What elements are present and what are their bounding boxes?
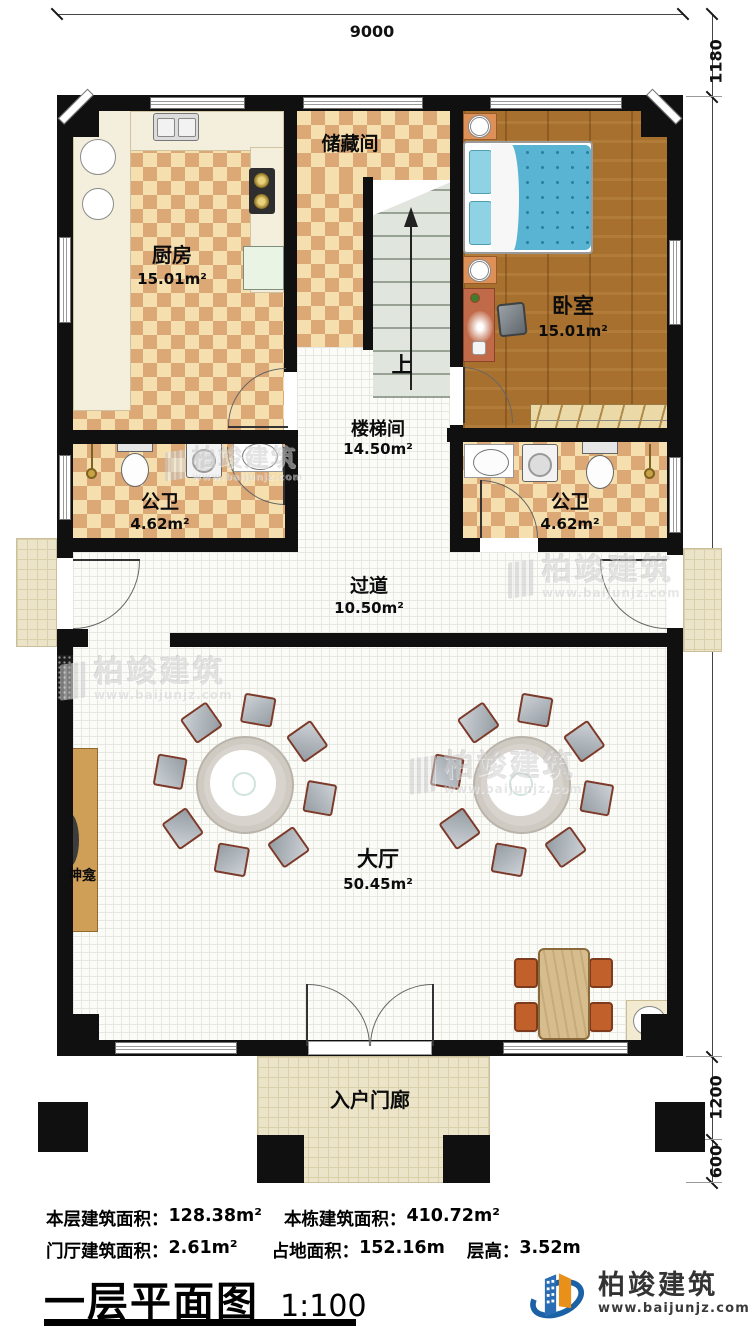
door-leaf <box>480 480 482 538</box>
pillar <box>655 1102 705 1152</box>
porch-right-floor <box>683 548 722 652</box>
wall <box>285 430 298 552</box>
room-label-bath-right: 公卫 4.62m² <box>510 492 630 533</box>
window <box>503 1042 628 1054</box>
brand-logo-icon <box>528 1263 588 1325</box>
washing-machine <box>522 444 558 482</box>
bed <box>463 141 593 254</box>
window <box>669 240 681 325</box>
entry-door-leaf <box>432 984 434 1046</box>
toilet-tank <box>582 440 618 454</box>
stats-row-2: 门厅建筑面积：2.61m² 占地面积：152.16m 层高：3.52m <box>46 1238 581 1263</box>
door-leaf <box>600 559 667 561</box>
chair <box>579 780 614 817</box>
room-name: 储藏间 <box>321 133 378 155</box>
room-name: 过道 <box>350 575 388 597</box>
toilet <box>582 440 618 488</box>
wall <box>450 538 480 552</box>
extension-line <box>686 1056 722 1057</box>
brush-handle <box>91 444 93 470</box>
sink-basin <box>157 118 175 137</box>
desk-lamp-glow <box>467 311 493 343</box>
chair <box>514 958 538 988</box>
wall <box>363 177 373 350</box>
sheet <box>491 144 519 251</box>
chair <box>153 753 188 790</box>
round-table-set <box>196 736 290 830</box>
room-name: 厨房 <box>152 243 192 267</box>
kitchen-pot <box>82 188 114 220</box>
pillow <box>469 150 492 194</box>
flue-pier <box>57 655 73 700</box>
door-leaf <box>463 367 465 423</box>
wall <box>57 538 297 552</box>
porch-pillar <box>257 1135 304 1183</box>
chair <box>240 693 277 728</box>
room-name: 卧室 <box>552 294 594 318</box>
room-label-bedroom: 卧室 15.01m² <box>513 295 633 340</box>
room-label-storage: 储藏间 <box>290 134 410 155</box>
room-name: 入户门廊 <box>330 1088 410 1112</box>
room-name: 公卫 <box>141 491 179 513</box>
pillar <box>38 1102 88 1152</box>
door-leaf <box>73 559 140 561</box>
chair <box>213 842 250 877</box>
stat-value: 2.61m² <box>169 1238 238 1263</box>
wall <box>57 430 298 444</box>
lazy-susan <box>509 772 533 796</box>
stove <box>249 168 275 214</box>
stat-label: 本层建筑面积： <box>46 1206 169 1231</box>
chair <box>514 1002 538 1032</box>
room-label-stairwell: 楼梯间 14.50m² <box>318 420 438 459</box>
wall <box>57 629 88 647</box>
round-table-set <box>473 736 567 830</box>
room-label-hall: 大厅 50.45m² <box>318 848 438 893</box>
window <box>59 237 71 323</box>
room-label-shrine: 神龛 <box>60 869 104 884</box>
stats-row-1: 本层建筑面积：128.38m² 本栋建筑面积：410.72m² <box>46 1206 500 1231</box>
stat-value: 3.52m <box>519 1238 580 1263</box>
storage-floor <box>297 180 363 352</box>
sink-basin <box>178 118 196 137</box>
room-name: 神龛 <box>68 868 96 884</box>
brand-url: www.baijunjz.com <box>598 1301 750 1316</box>
chair <box>302 780 337 817</box>
square-table <box>538 948 590 1040</box>
lamp <box>468 115 491 138</box>
brush-handle <box>649 444 651 470</box>
dimension-right-3: 1200 <box>707 1068 726 1128</box>
room-label-kitchen: 厨房 15.01m² <box>112 245 232 288</box>
stat-value: 128.38m² <box>169 1206 262 1231</box>
plant <box>470 293 480 303</box>
chair <box>589 1002 613 1032</box>
dimension-line-top <box>57 14 683 15</box>
dimension-right-4: 600 <box>707 1132 726 1192</box>
room-label-bath-left: 公卫 4.62m² <box>100 492 220 533</box>
porch-pillar <box>443 1135 490 1183</box>
window <box>669 457 681 533</box>
room-area: 4.62m² <box>540 515 599 533</box>
fridge <box>243 246 284 290</box>
window <box>59 455 71 520</box>
stat-label: 占地面积： <box>272 1238 360 1263</box>
stat-value: 152.16m <box>359 1238 445 1263</box>
window <box>490 97 622 109</box>
room-label-porch: 入户门廊 <box>310 1090 430 1112</box>
wall <box>170 633 683 647</box>
kitchen-sink <box>153 113 199 141</box>
brand-logo: 柏竣建筑 www.baijunjz.com <box>528 1263 750 1325</box>
chair <box>589 958 613 988</box>
dimension-top: 9000 <box>332 22 412 41</box>
room-name: 公卫 <box>551 491 589 513</box>
room-area: 15.01m² <box>137 270 207 288</box>
desk <box>463 288 495 362</box>
room-area: 14.50m² <box>343 440 413 458</box>
floor-plan: 9000 1180 13800 1200 600 <box>0 0 750 1337</box>
burner <box>254 194 269 209</box>
extension-line <box>686 96 722 97</box>
stat-label: 门厅建筑面积： <box>46 1238 169 1263</box>
pillow <box>469 201 492 245</box>
chair <box>430 753 465 790</box>
window <box>115 1042 237 1054</box>
room-area: 15.01m² <box>538 322 608 340</box>
wall <box>667 628 683 1056</box>
stair-arrow-head <box>404 200 418 227</box>
wall <box>450 111 463 367</box>
lamp <box>468 259 491 282</box>
stair-up-label: 上 <box>388 354 416 377</box>
wall <box>538 538 683 552</box>
toilet-bowl <box>121 453 149 487</box>
chair <box>490 842 527 877</box>
stat-label: 本栋建筑面积： <box>284 1206 407 1231</box>
room-area: 10.50m² <box>334 599 404 617</box>
title-underline <box>44 1319 356 1326</box>
toilet-bowl <box>586 455 614 489</box>
room-name: 楼梯间 <box>351 419 405 440</box>
window <box>303 97 423 109</box>
door-leaf <box>228 426 288 428</box>
sink-bowl <box>473 449 509 476</box>
lazy-susan <box>232 772 256 796</box>
toilet <box>117 438 153 486</box>
kitchen-pot <box>80 139 116 175</box>
room-area: 4.62m² <box>130 515 189 533</box>
corner-pier <box>641 1014 683 1056</box>
burner <box>254 173 269 188</box>
room-area: 50.45m² <box>343 875 413 893</box>
washing-machine <box>186 440 222 478</box>
brand-name: 柏竣建筑 <box>598 1272 750 1300</box>
room-name: 大厅 <box>357 847 399 871</box>
entry-door-leaf <box>306 984 308 1046</box>
door-leaf <box>283 447 285 505</box>
cup <box>472 341 486 355</box>
porch-left-floor <box>16 538 57 647</box>
bath-sink <box>464 444 514 478</box>
stat-value: 410.72m² <box>406 1206 499 1231</box>
wall <box>447 428 683 442</box>
chair <box>517 693 554 728</box>
room-label-corridor: 过道 10.50m² <box>309 576 429 617</box>
dimension-right-1: 1180 <box>707 32 726 92</box>
window <box>150 97 245 109</box>
stat-label: 层高： <box>467 1238 520 1263</box>
corner-pier <box>57 1014 99 1056</box>
